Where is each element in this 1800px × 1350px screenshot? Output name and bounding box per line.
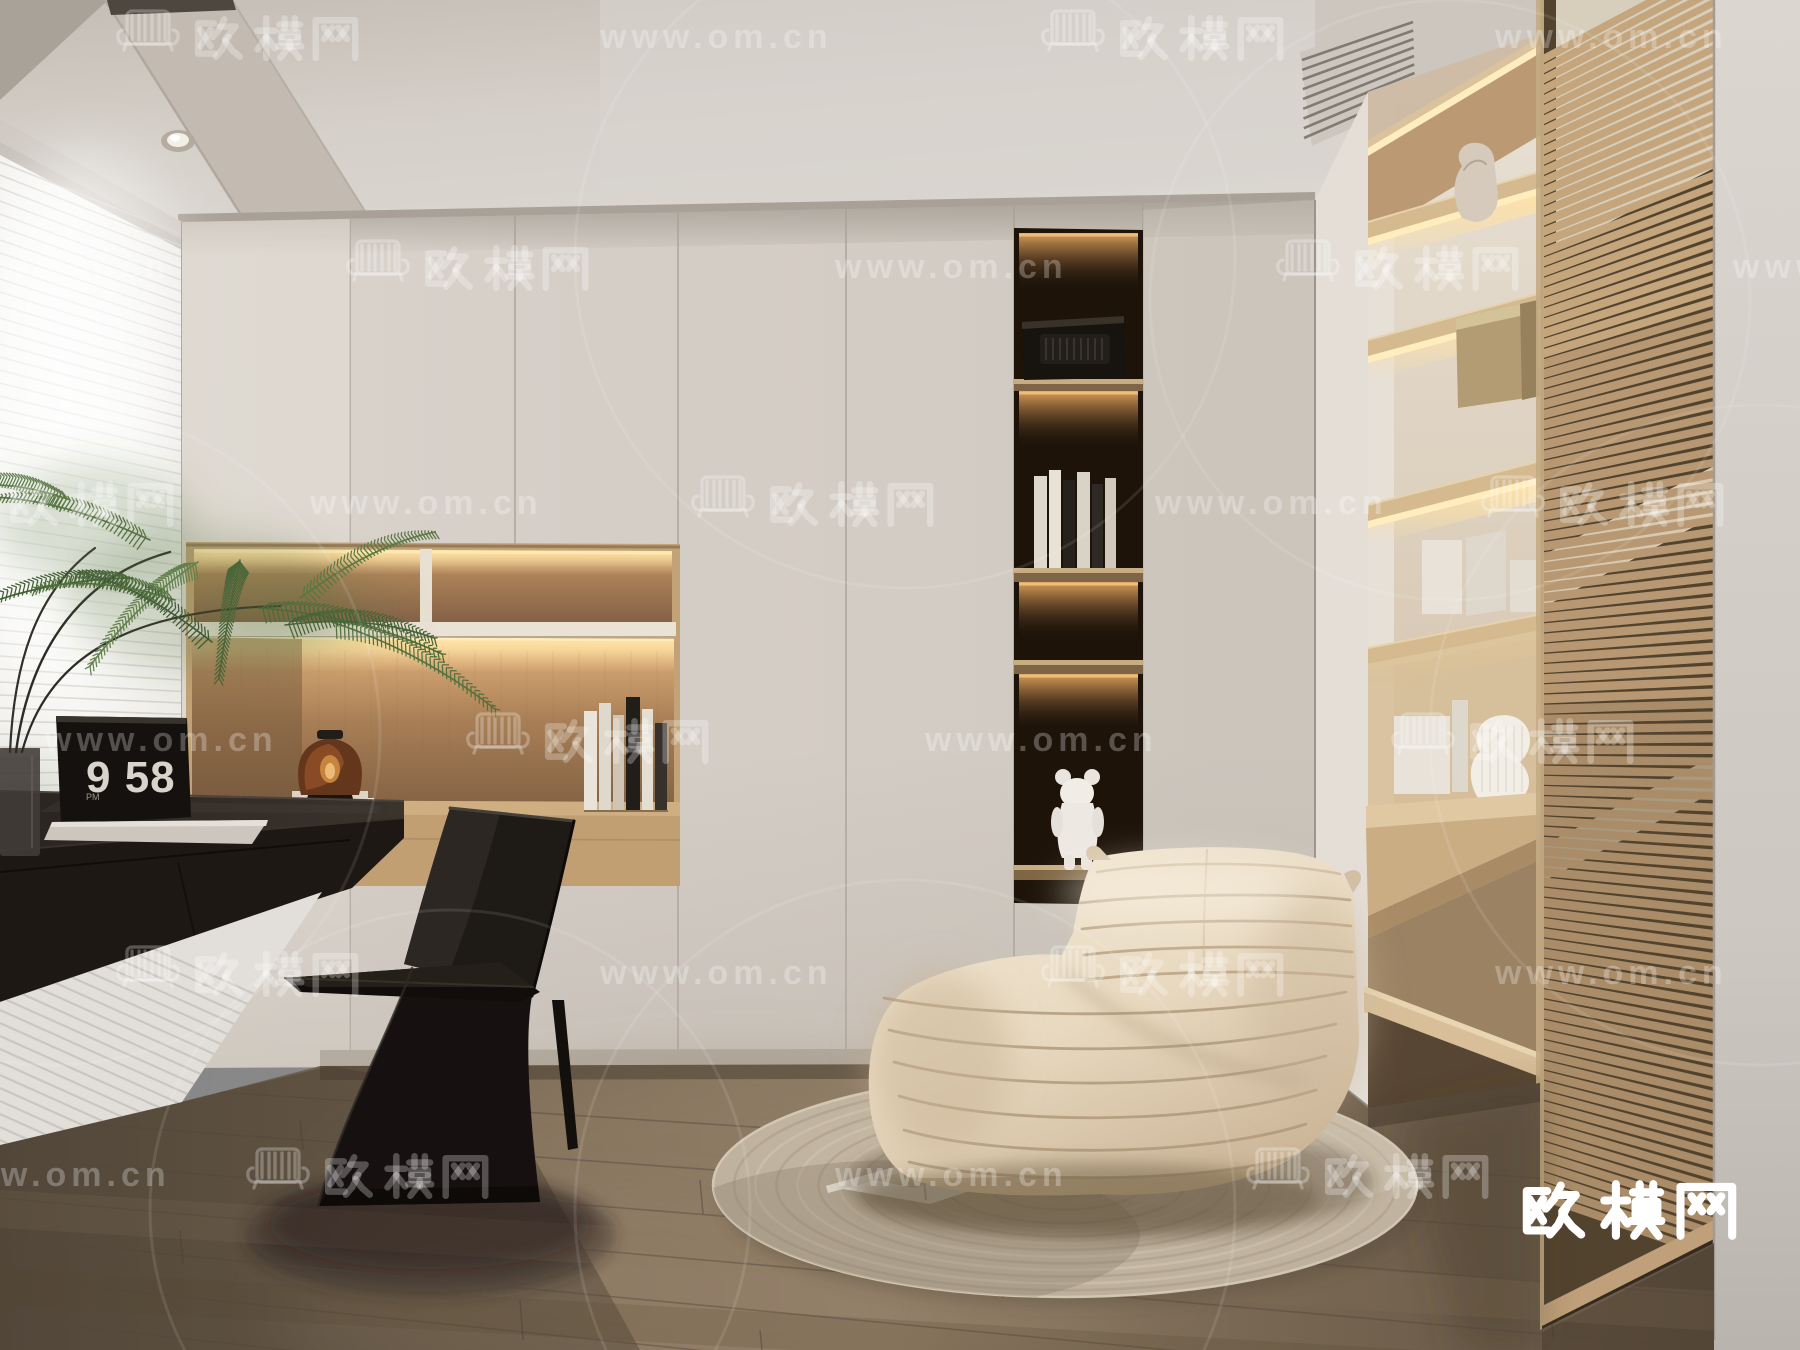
svg-text:www.om.cn: www.om.cn: [599, 18, 833, 56]
svg-text:www.om.cn: www.om.cn: [1154, 484, 1388, 522]
svg-text:www.om.cn: www.om.cn: [834, 248, 1068, 286]
svg-text:www.om.cn: www.om.cn: [834, 1156, 1068, 1194]
svg-text:www.om.cn: www.om.cn: [0, 1156, 171, 1194]
svg-text:www.om.cn: www.om.cn: [44, 721, 278, 759]
svg-text:www.om.cn: www.om.cn: [1494, 954, 1728, 992]
svg-text:www.om.cn: www.om.cn: [924, 721, 1158, 759]
svg-text:www.om.cn: www.om.cn: [309, 484, 543, 522]
svg-text:PM: PM: [86, 792, 100, 802]
svg-text:www.om.cn: www.om.cn: [1494, 18, 1728, 56]
svg-text:www.om.cn: www.om.cn: [599, 954, 833, 992]
svg-text:www.om.cn: www.om.cn: [0, 248, 171, 286]
svg-text:www.om.cn: www.om.cn: [1732, 248, 1800, 286]
